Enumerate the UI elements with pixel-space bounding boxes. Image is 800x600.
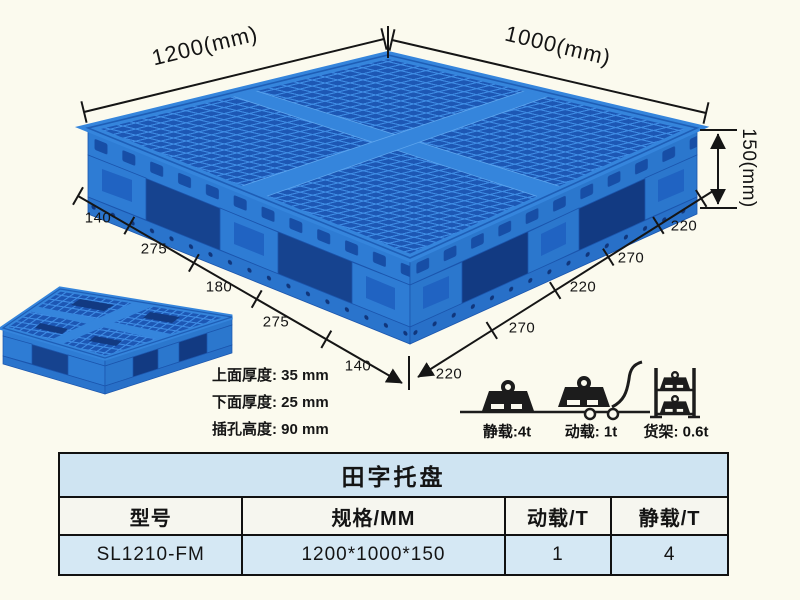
spec-table-header-row: 型号 规格/MM 动载/T 静载/T	[60, 498, 727, 534]
dim-seg-left-5: 140	[345, 358, 372, 375]
dim-seg-right-1: 220	[436, 366, 463, 383]
spec-table: 田字托盘 型号 规格/MM 动载/T 静载/T SL1210-FM 1200*1…	[58, 452, 729, 576]
header-spec: 规格/MM	[243, 498, 505, 534]
dim-seg-left-3: 180	[206, 279, 233, 296]
dim-seg-left-4: 275	[263, 314, 290, 331]
rack-load-shelf-icon	[650, 368, 700, 417]
dim-seg-left-1: 140	[85, 210, 112, 227]
header-model: 型号	[60, 498, 243, 534]
dim-seg-right-2: 270	[509, 320, 536, 337]
spec-table-data-row: SL1210-FM 1200*1000*150 1 4	[60, 534, 727, 574]
dim-seg-right-4: 270	[618, 250, 645, 267]
cell-spec: 1200*1000*150	[243, 534, 505, 574]
dynamic-load-label: 动载: 1t	[565, 421, 618, 442]
rack-load-label: 货架: 0.6t	[643, 421, 708, 442]
spec-table-title: 田字托盘	[60, 454, 727, 498]
dim-seg-left-2: 275	[141, 241, 168, 258]
header-dynamic-load: 动载/T	[506, 498, 613, 534]
pallet-spec-sheet: 1200(mm) 1000(mm) 150(mm) 140 275 180 27…	[0, 0, 800, 600]
main-pallet-illustration	[88, 55, 697, 344]
cell-model: SL1210-FM	[60, 534, 243, 574]
note-fork-height: 插孔高度: 90 mm	[212, 418, 329, 439]
header-static-load: 静载/T	[612, 498, 727, 534]
dim-label-150mm: 150(mm)	[737, 128, 759, 208]
load-rating-icons	[460, 362, 700, 419]
note-bottom-thickness: 下面厚度: 25 mm	[212, 391, 329, 412]
note-top-thickness: 上面厚度: 35 mm	[212, 364, 329, 385]
static-load-weight-icon	[482, 382, 534, 411]
small-pallet-illustration	[3, 289, 232, 394]
dim-seg-right-3: 220	[570, 279, 597, 296]
dynamic-load-trolley-icon	[558, 362, 642, 419]
static-load-label: 静载:4t	[483, 421, 531, 442]
cell-dynamic-load: 1	[506, 534, 613, 574]
cell-static-load: 4	[612, 534, 727, 574]
dim-seg-right-5: 220	[671, 218, 698, 235]
